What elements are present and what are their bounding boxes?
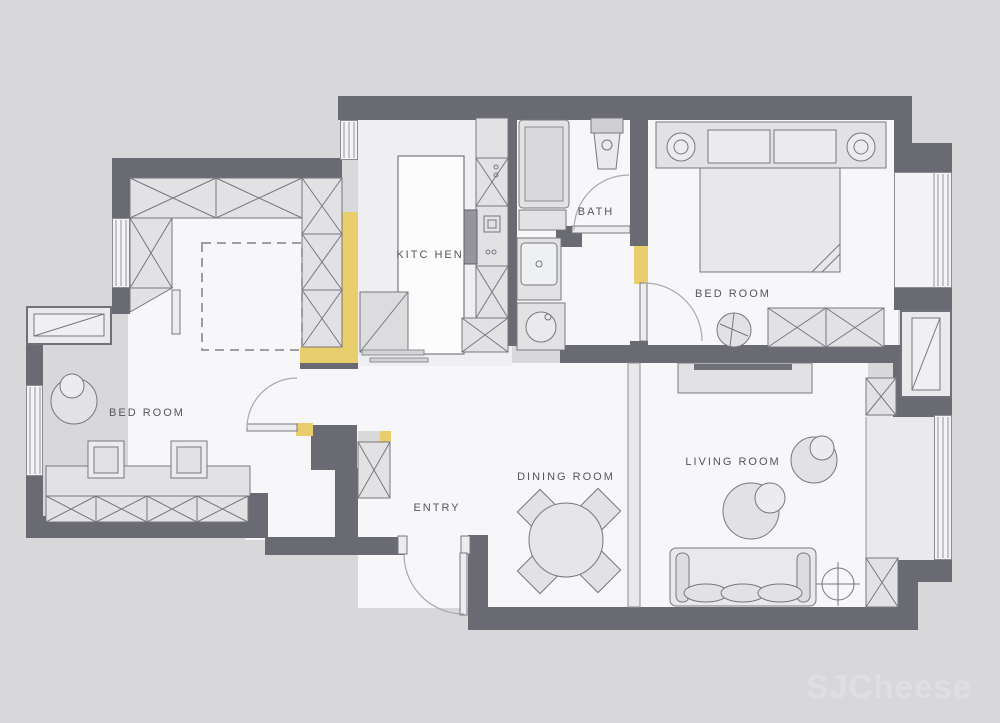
tv-cabinet <box>678 363 812 393</box>
headboard-nightstands <box>656 122 886 168</box>
shower <box>519 120 569 230</box>
bedroom-main-door <box>640 283 702 341</box>
room-label-dining: DINING ROOM <box>517 471 615 483</box>
dining-set <box>517 488 620 593</box>
furniture-layer <box>0 0 1000 723</box>
room-label-bedroom-main: BED ROOM <box>695 288 771 300</box>
washing-machine <box>517 303 565 350</box>
room-label-kitchen: KITC HEN <box>396 249 463 261</box>
dresser <box>768 308 884 347</box>
storage-cabinet-row <box>46 496 248 522</box>
wardrobe-left-bedroom <box>130 178 342 347</box>
desk-and-chairs <box>46 441 250 496</box>
armchair-with-ottoman <box>723 436 837 539</box>
floor-lamp <box>816 562 860 606</box>
kitchen-counter <box>462 118 508 352</box>
bedroom-left-door <box>247 378 297 431</box>
room-label-bath: BATH <box>578 206 615 218</box>
bath-door <box>572 175 630 233</box>
floor-plan-canvas: KITC HEN BATH BED ROOM BED ROOM ENTRY DI… <box>0 0 1000 723</box>
shoe-cabinet <box>358 442 390 498</box>
refrigerator <box>464 210 477 264</box>
watermark-logo: SJCheese <box>806 668 972 706</box>
toilet <box>591 118 623 169</box>
sofa <box>670 548 816 606</box>
washbasin <box>517 238 561 300</box>
room-label-bedroom-left: BED ROOM <box>109 407 185 419</box>
entry-door <box>398 536 470 615</box>
room-label-entry: ENTRY <box>413 502 460 514</box>
partition-dining-living <box>628 363 640 607</box>
lounge-chair-left-bedroom <box>51 374 97 424</box>
balcony-cabinets <box>866 378 898 607</box>
double-bed <box>700 168 840 272</box>
bed-placeholder-dashed <box>202 243 302 350</box>
stool <box>717 313 751 347</box>
room-label-living: LIVING ROOM <box>685 456 780 468</box>
